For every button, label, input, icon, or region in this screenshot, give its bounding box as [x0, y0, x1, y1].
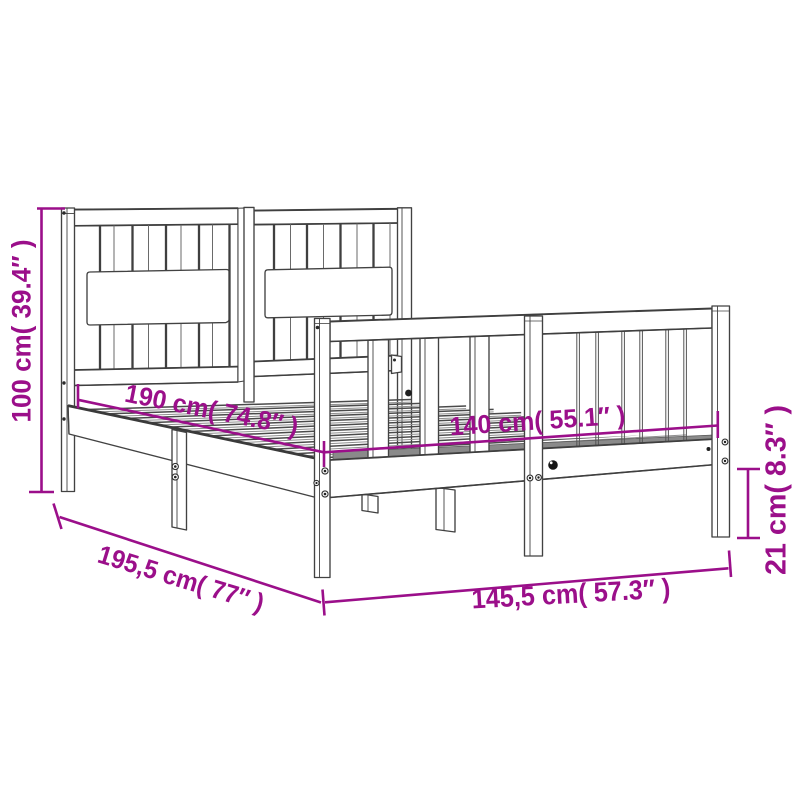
svg-text:21 cm( 8.3″ ): 21 cm( 8.3″ )	[761, 405, 793, 575]
svg-text:100 cm( 39.4″ ): 100 cm( 39.4″ )	[7, 240, 37, 423]
